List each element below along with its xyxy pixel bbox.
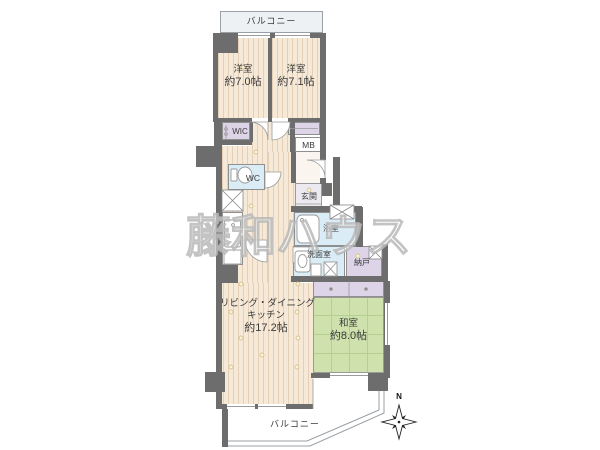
wall [322, 183, 332, 196]
balcony-bottom-label: バルコニー [270, 419, 316, 430]
wall [291, 206, 362, 212]
balcony-top-label: バルコニー [221, 16, 322, 27]
wall-pillar [220, 265, 238, 283]
storage-label: 納戸 [346, 258, 378, 268]
compass-center-dot [398, 421, 401, 424]
bathroom-label: 浴室 [314, 224, 348, 234]
room-name: キッチン [220, 310, 312, 322]
room-size: 約8.0帖 [313, 330, 384, 344]
toilet-label: WC [242, 173, 264, 184]
room-name: 洋室 [272, 64, 320, 76]
wall [333, 157, 340, 208]
compass-rose-icon [382, 405, 416, 439]
window [275, 33, 310, 38]
wall-corner-br [368, 376, 388, 391]
wall [268, 118, 272, 122]
compass-main-star [382, 405, 416, 439]
bedroom1-label: 洋室 約7.0帖 [218, 64, 268, 90]
room-name: リビング・ダイニング [220, 298, 312, 310]
meter-box-label: MB [295, 140, 322, 151]
wall [382, 244, 388, 281]
floorplan-canvas: バルコニー [0, 0, 600, 450]
entrance-label: 玄関 [296, 192, 322, 202]
window [258, 404, 286, 409]
wall-balcony-left [222, 409, 228, 447]
wall [214, 140, 252, 145]
wall [356, 207, 363, 247]
wall-pillar [196, 146, 217, 167]
room-name: 和室 [313, 318, 384, 330]
window [330, 373, 368, 378]
wall-pillar [205, 372, 225, 392]
wall [218, 118, 252, 122]
window [227, 404, 255, 409]
room-name: 洋室 [218, 64, 268, 76]
room-size: 約7.0帖 [218, 76, 268, 90]
entrance-hall-floor [295, 151, 320, 183]
japanese-room-closets [313, 280, 384, 297]
washroom-label: 洗面室 [296, 250, 342, 260]
wic-label: WIC [230, 127, 250, 137]
wall [291, 152, 296, 183]
window [238, 33, 270, 38]
compass-diagonal-star [392, 415, 406, 429]
wall [291, 276, 388, 282]
kitchen-counter [222, 212, 243, 265]
room-size: 約7.1帖 [272, 76, 320, 90]
ldk-label: リビング・ダイニング キッチン 約17.2帖 [220, 298, 312, 336]
japanese-room-label: 和室 約8.0帖 [313, 318, 384, 344]
compass-north-label: N [393, 392, 405, 402]
wall [250, 122, 253, 142]
window [385, 303, 390, 345]
bedroom2-label: 洋室 約7.1帖 [272, 64, 320, 90]
room-size: 約17.2帖 [220, 322, 312, 336]
